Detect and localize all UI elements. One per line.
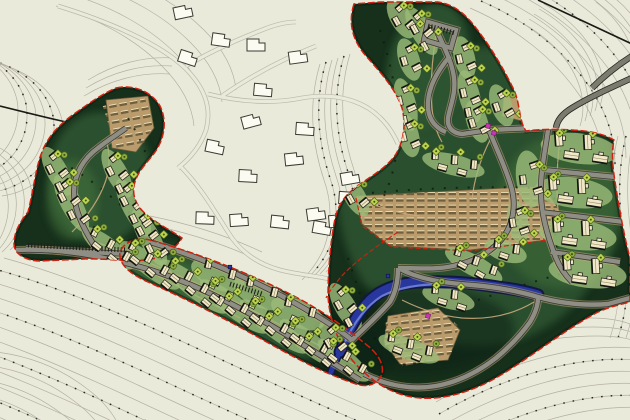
tree-icon [498,261,504,267]
house-footprint [509,218,516,228]
tree-icon [368,361,374,367]
house-footprint [520,175,527,185]
tree-icon [477,154,483,160]
tree-icon [61,152,67,158]
tree-icon [73,180,79,186]
house-footprint [407,339,415,349]
tree-icon [92,215,98,221]
site-plan-map [0,0,630,420]
house-footprint [451,155,458,165]
blue-feature-marker [386,274,390,278]
house-footprint [451,290,458,300]
magenta-feature-marker [425,313,431,319]
house-footprint [426,346,434,356]
site-plan-canvas [0,0,630,420]
tree-icon [170,249,176,255]
tree-icon [339,325,345,331]
house-footprint [471,160,478,170]
house-footprint [513,244,520,254]
tree-icon [433,341,439,347]
blue-feature-marker [228,265,232,269]
magenta-feature-marker [491,130,497,136]
magenta-feature-marker [485,123,491,129]
tree-icon [407,3,413,9]
tree-icon [132,249,138,255]
tree-icon [121,154,127,160]
tree-icon [425,11,431,17]
tree-icon [349,287,355,293]
